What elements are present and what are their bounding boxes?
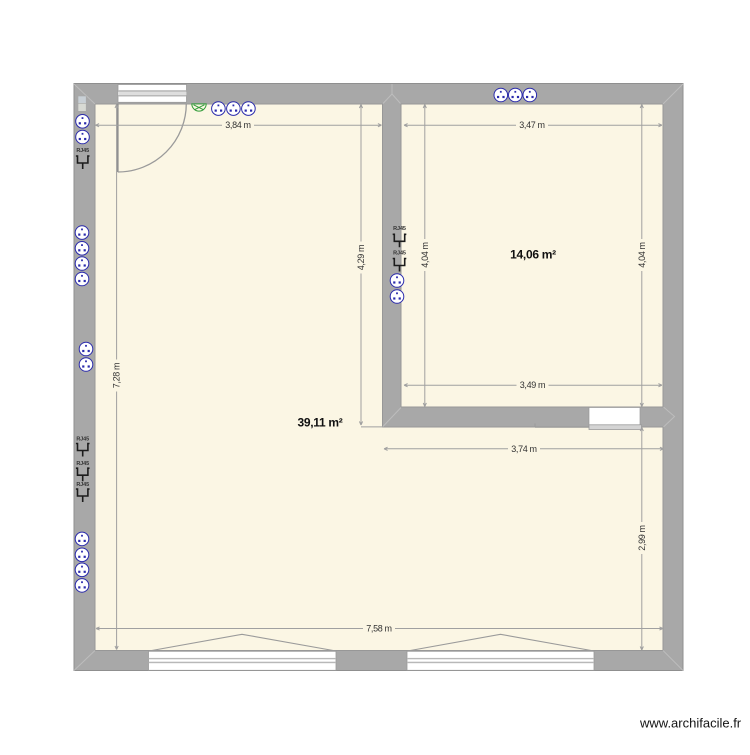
svg-text:RJ45: RJ45	[76, 482, 89, 488]
svg-text:RJ45: RJ45	[393, 250, 406, 256]
svg-text:39,11 m²: 39,11 m²	[298, 416, 343, 430]
svg-text:RJ45: RJ45	[393, 226, 406, 232]
svg-text:RJ45: RJ45	[76, 436, 89, 442]
svg-text:14,06 m²: 14,06 m²	[510, 247, 556, 261]
svg-text:4,04 m: 4,04 m	[420, 242, 430, 267]
svg-text:3,84 m: 3,84 m	[225, 120, 250, 130]
svg-text:4,29 m: 4,29 m	[356, 245, 366, 270]
svg-text:7,28 m: 7,28 m	[112, 363, 122, 388]
svg-text:3,49 m: 3,49 m	[520, 380, 545, 390]
svg-text:RJ45: RJ45	[76, 148, 89, 154]
svg-text:3,47 m: 3,47 m	[519, 120, 544, 130]
svg-text:4,04 m: 4,04 m	[637, 242, 647, 267]
svg-text:3,74 m: 3,74 m	[511, 444, 536, 454]
svg-text:7,58 m: 7,58 m	[366, 624, 391, 634]
svg-text:www.archifacile.fr: www.archifacile.fr	[639, 716, 742, 731]
svg-text:2,99 m: 2,99 m	[637, 525, 647, 550]
svg-text:RJ45: RJ45	[76, 461, 89, 467]
